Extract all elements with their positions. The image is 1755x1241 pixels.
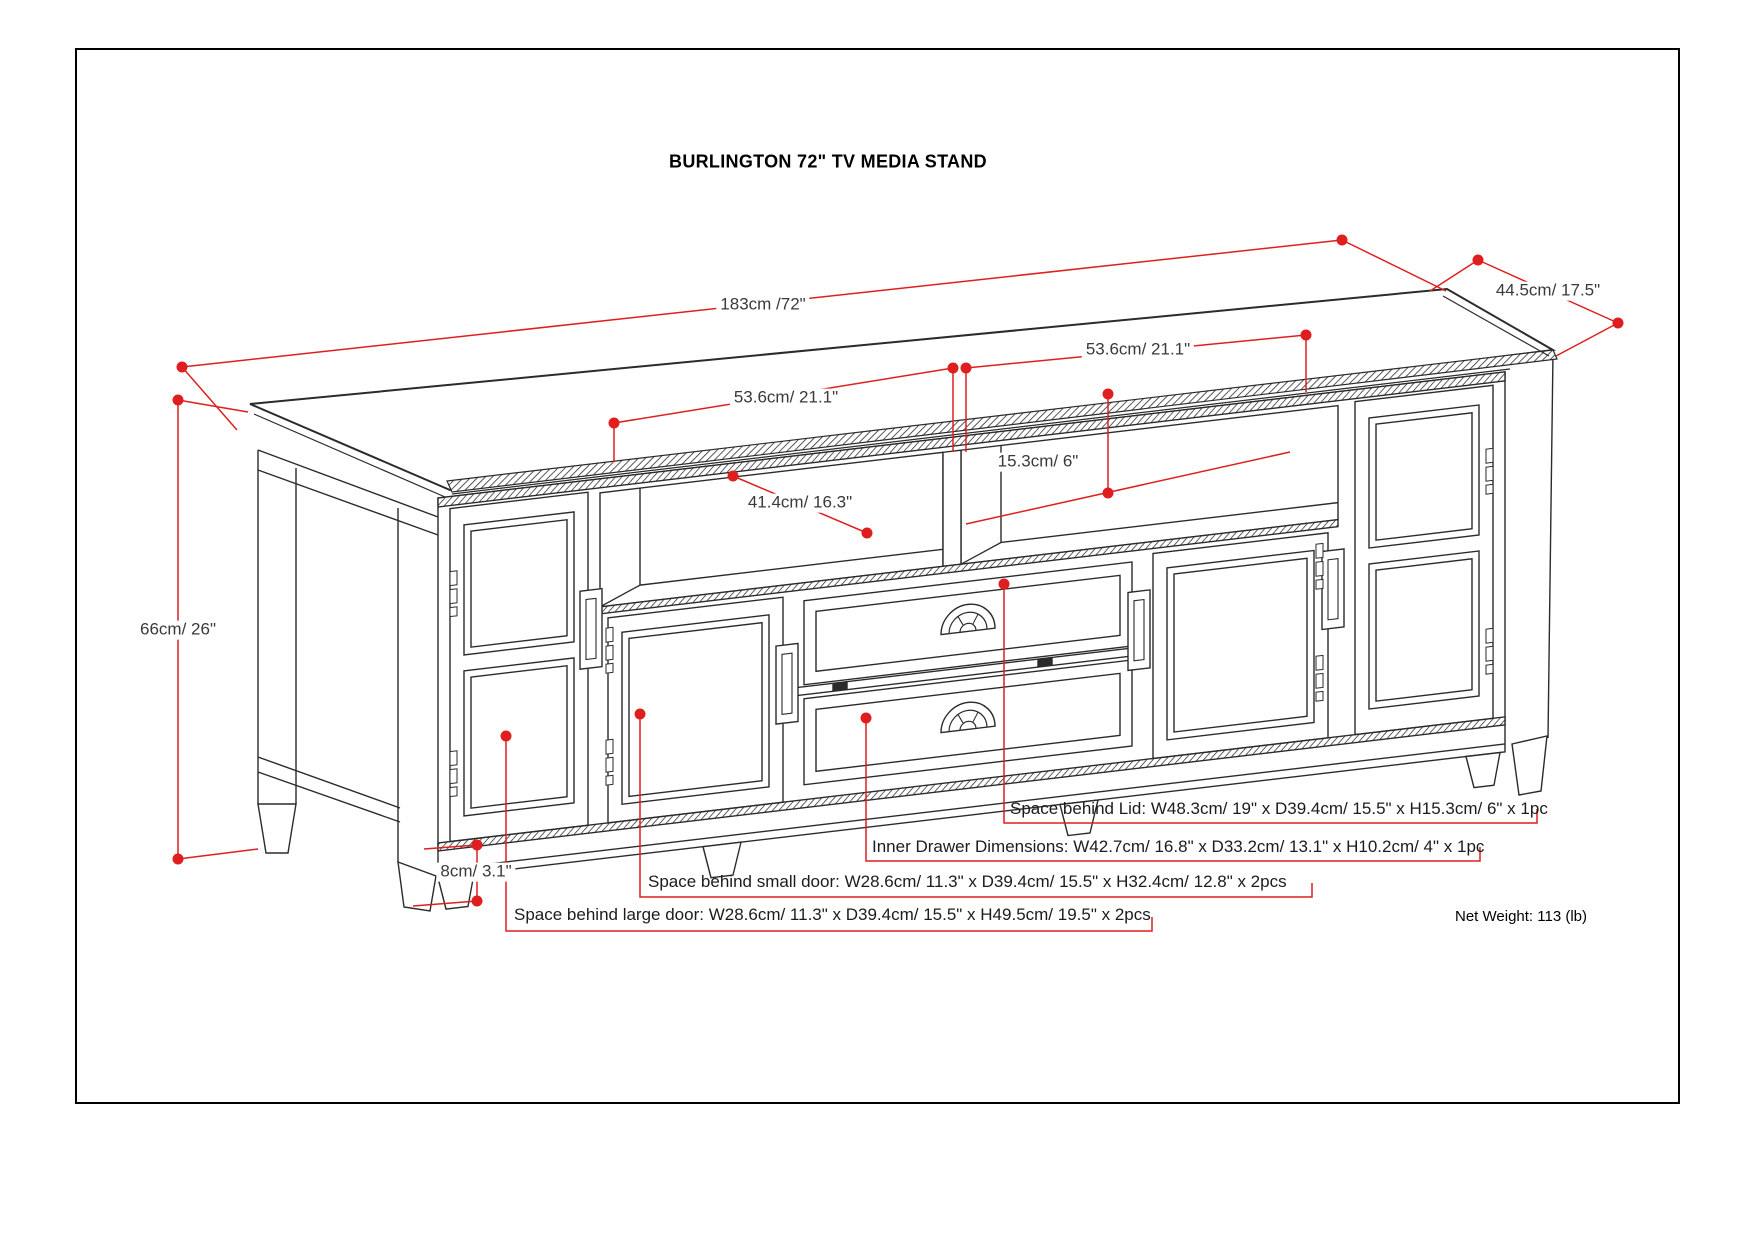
opening-height-label: 15.3cm/ 6" bbox=[994, 453, 1083, 472]
leg-height-label: 8cm/ 3.1" bbox=[436, 863, 515, 882]
diagram-title: BURLINGTON 72" TV MEDIA STAND bbox=[669, 152, 987, 173]
inner-drawer-callout: Inner Drawer Dimensions: W42.7cm/ 16.8" … bbox=[872, 838, 1484, 857]
small-door-callout: Space behind small door: W28.6cm/ 11.3" … bbox=[648, 873, 1287, 892]
overall-depth-label: 44.5cm/ 17.5" bbox=[1492, 282, 1604, 301]
right-side-panel bbox=[1512, 352, 1553, 795]
left-opening-width-label: 53.6cm/ 21.1" bbox=[730, 389, 842, 408]
opening-depth-label: 41.4cm/ 16.3" bbox=[744, 494, 856, 513]
media-stand-line-drawing bbox=[0, 0, 1755, 1241]
dimension-sheet: { "title": "BURLINGTON 72\" TV MEDIA STA… bbox=[0, 0, 1755, 1241]
net-weight-label: Net Weight: 113 (lb) bbox=[1455, 908, 1587, 925]
lid-callout: Space behind Lid: W48.3cm/ 19" x D39.4cm… bbox=[1010, 800, 1548, 819]
large-door-callout: Space behind large door: W28.6cm/ 11.3" … bbox=[514, 906, 1151, 925]
left-side-panel bbox=[258, 450, 438, 911]
overall-width-label: 183cm /72" bbox=[716, 296, 809, 315]
right-opening-width-label: 53.6cm/ 21.1" bbox=[1082, 341, 1194, 360]
overall-height-label: 66cm/ 26" bbox=[136, 621, 220, 640]
